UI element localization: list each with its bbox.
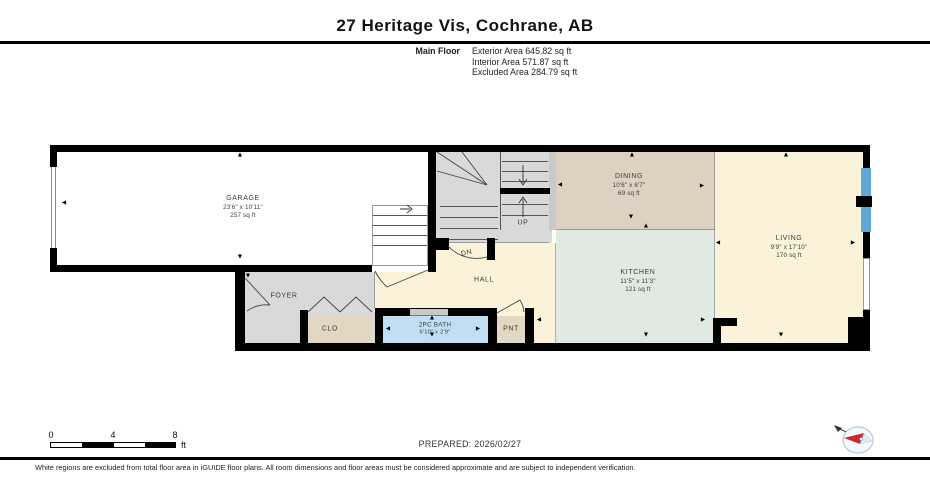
dimension-arrow-left-icon: ◄ (61, 200, 68, 207)
kitchen-label: KITCHEN 11'5" x 11'3" 121 sq ft (620, 269, 656, 293)
dimension-arrow-down-icon: ▼ (643, 332, 650, 339)
dimension-arrow-left-icon: ◄ (385, 326, 392, 333)
page-title: 27 Heritage Vis, Cochrane, AB (0, 16, 930, 36)
scale-segment (83, 442, 114, 448)
closet-label: CLO (322, 326, 338, 335)
dimension-arrow-right-icon: ► (699, 183, 706, 190)
hall-label: HALL (474, 277, 494, 286)
stairs-up-label: UP (518, 220, 529, 229)
pantry-label: PNT (503, 326, 519, 335)
footer-divider (0, 457, 930, 460)
scale-unit: ft (181, 440, 186, 450)
scale-tick: 0 (48, 430, 53, 440)
dimension-arrow-up-icon: ▲ (643, 223, 650, 230)
dimension-arrow-left-icon: ◄ (557, 182, 564, 189)
scale-segment (50, 442, 83, 448)
foyer-label: FOYER (270, 293, 297, 302)
floor-plan: ▲ ▼ ◄ ▼ ▲ ◄ ► ▼ ▲ ◄ ► ▼ ▲ ◄ ► ▼ ◄ ► ▲ ▼ … (50, 145, 870, 355)
exterior-area: Exterior Area 645.82 sq ft (472, 46, 772, 56)
dimension-arrow-down-icon: ▼ (628, 214, 635, 221)
compass-icon (832, 420, 876, 456)
dimension-arrow-up-icon: ▲ (237, 152, 244, 159)
dimension-arrow-left-icon: ◄ (536, 317, 543, 324)
footer-disclaimer: White regions are excluded from total fl… (35, 463, 895, 472)
dimension-arrow-down-icon: ▼ (245, 273, 252, 280)
garage-label: GARAGE 23'6" x 10'11" 257 sq ft (223, 195, 263, 219)
living-label: LIVING 9'9" x 17'10" 170 sq ft (771, 235, 808, 259)
dimension-arrow-up-icon: ▲ (783, 152, 790, 159)
prepared-date: PREPARED: 2026/02/27 (370, 439, 570, 449)
excluded-area: Excluded Area 284.79 sq ft (472, 67, 772, 77)
header-divider (0, 41, 930, 44)
bath-label: 2PC BATH 6'10" x 2'9" (419, 321, 451, 336)
floor-label: Main Floor (330, 46, 460, 56)
dining-label: DINING 10'6" x 6'7" 69 sq ft (613, 173, 646, 197)
dimension-arrow-right-icon: ► (700, 317, 707, 324)
dimension-arrow-down-icon: ▼ (237, 254, 244, 261)
dimension-arrow-right-icon: ► (850, 240, 857, 247)
scale-tick: 4 (110, 430, 115, 440)
dimension-arrow-down-icon: ▼ (778, 332, 785, 339)
scale-segment (146, 442, 177, 448)
scale-bar (50, 442, 176, 448)
scale-tick: 8 (172, 430, 177, 440)
dimension-arrow-right-icon: ► (475, 326, 482, 333)
scale-segment (113, 442, 146, 448)
interior-area: Interior Area 571.87 sq ft (472, 57, 772, 67)
dimension-arrow-left-icon: ◄ (715, 240, 722, 247)
dimension-arrow-up-icon: ▲ (629, 152, 636, 159)
